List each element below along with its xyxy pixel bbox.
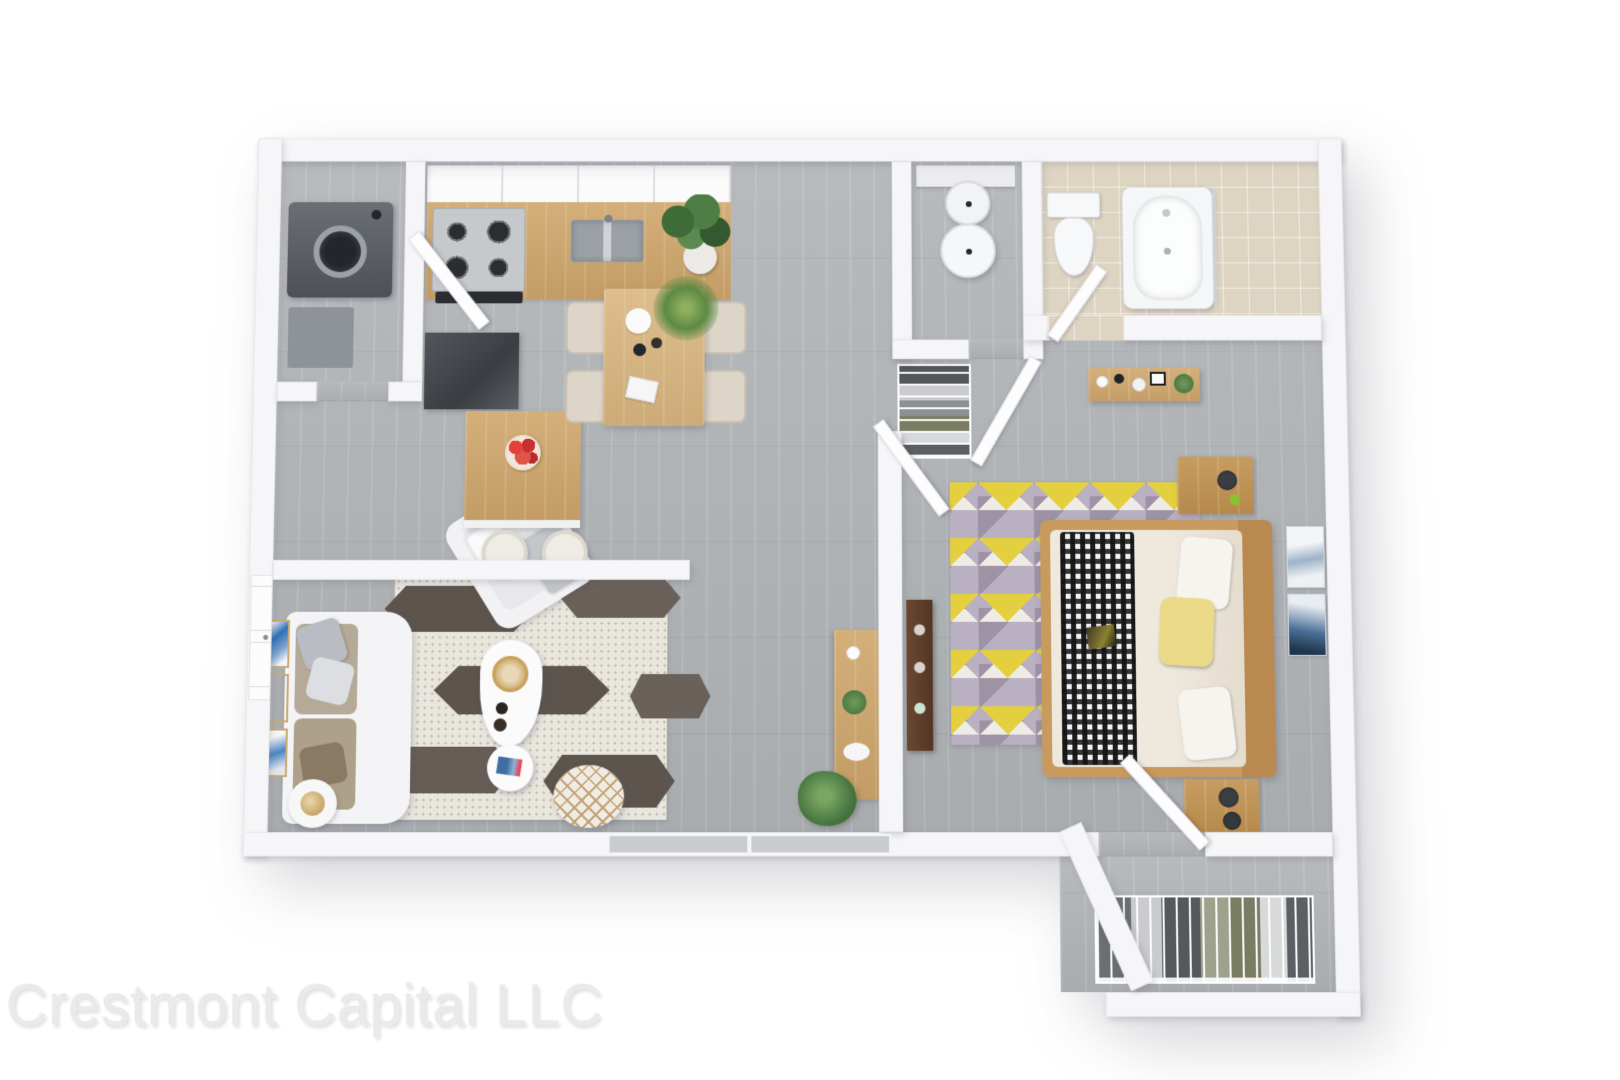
wall-laundry-bottom [277,382,317,402]
table-magazine [625,376,659,403]
dining-chair [702,370,746,423]
washer-knob [371,210,381,220]
fruit-bowl-apples [505,435,541,471]
console-candle [846,646,860,660]
table-plate [625,308,651,333]
tub-drain [1162,209,1170,217]
faucet [604,215,612,223]
wall-living-top [273,560,690,580]
oven-front [435,292,522,304]
console-plant [842,690,866,714]
tub-faucet [1164,248,1171,255]
wall-laundry-bottom-b [388,382,422,402]
apartment-floor-plan [239,138,1361,1022]
artwork-panel [1286,526,1325,588]
watermark-text: Crestmont Capital LLC [6,972,603,1039]
wall-bath-bottom-b [1123,315,1322,340]
nightstand-top [1177,457,1254,514]
lamp-black [1223,812,1242,830]
double-bed [1040,520,1277,777]
laundry-cabinet [287,307,354,368]
wall-divider-living-bedroom [878,431,904,832]
double-sink [570,220,643,263]
floor-plant [798,771,857,826]
cosmetics-black [1114,374,1124,384]
pillow-white [1177,686,1238,762]
palm-plant [653,276,719,340]
dark-counter [424,333,519,410]
bathtub [1121,187,1214,309]
wall-laundry-right [402,162,425,382]
bedroom-leaning-artwork [1286,526,1327,660]
pedestal-sink-base [940,224,996,278]
table-cup-dark [633,343,646,356]
wire-wardrobe [897,364,971,459]
monstera-plant [655,194,734,278]
wall-closet-bottom [1106,992,1361,1017]
washer-door [313,225,367,278]
wall-top [258,138,1342,161]
washing-machine [287,202,394,297]
wall-nook-left [892,162,913,360]
pillow-yellow [1158,596,1215,667]
table-cup [494,718,507,731]
table-cup [496,702,508,714]
wall-bath-bottom-a [1023,315,1048,340]
media-dresser [906,600,933,751]
magazines-blue [496,756,523,776]
monstera-leaves [656,194,735,262]
doorway-nook [969,339,1024,359]
shelf-plant [1174,374,1194,394]
rug-hexagon-shape [630,674,711,718]
artwork-panel [1287,594,1326,656]
diamond-pouf [553,765,624,828]
console-dish [843,743,869,761]
kitchen-island [464,411,581,528]
gold-lamp [300,791,325,815]
doorway-laundry [316,382,388,402]
floor-plan-image: Crestmont Capital LLC [0,0,1620,1080]
gold-tray [492,656,529,692]
window-bottom [607,834,891,854]
lamp-black [1217,470,1237,490]
toilet-tank [1047,192,1101,217]
wall-bottom-right [1205,832,1333,856]
perfume-white [1132,378,1146,392]
bed-magazine [1086,624,1117,650]
table-cup-dark [651,338,662,349]
pedestal-sink-basin [945,181,991,226]
black-frame [1150,372,1166,386]
entry-door [248,575,273,700]
vanity-shelf [1088,368,1200,401]
sink-dot [966,249,972,255]
green-apple-decor [1229,494,1240,505]
toilet-bowl [1054,218,1094,276]
sink-drain [966,201,972,207]
lamp-black [1218,787,1239,807]
checkered-throw [1060,532,1137,765]
wall-nook-bottom [892,339,969,359]
perfume-white [1096,376,1108,388]
